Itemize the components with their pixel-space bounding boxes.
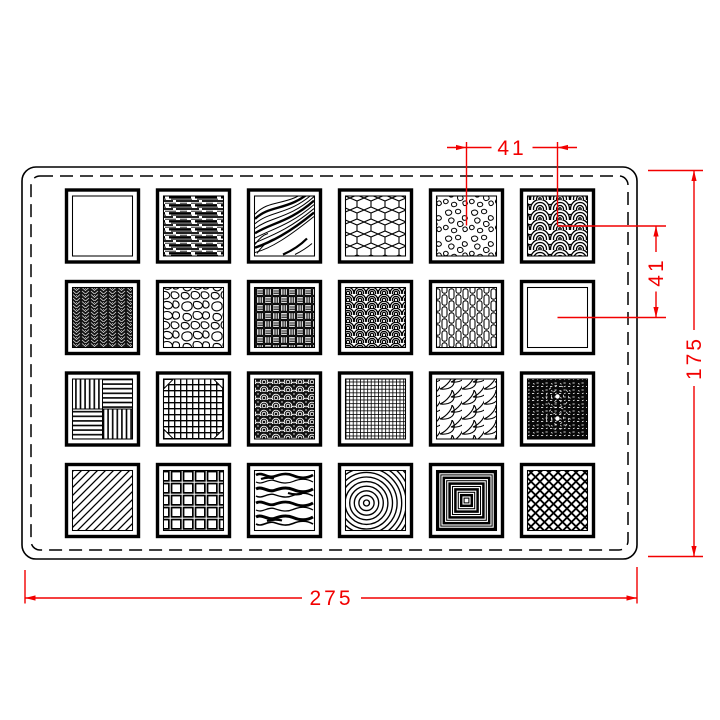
tile-r1c3-wood-grain-curved [249, 185, 321, 262]
tile-r4c6-diamond-net [522, 465, 594, 537]
dimension-label-horizontal-pitch: 41 [497, 137, 526, 160]
arrowhead [691, 546, 696, 557]
tile-r4c2-plaid [158, 465, 230, 537]
arrowhead [25, 595, 36, 600]
tile-r2c1-dark-knit [67, 282, 139, 354]
tile-r2c4-pine-scales [340, 282, 412, 354]
arrowhead [558, 145, 569, 150]
tile-r2c2-cobblestone [158, 282, 230, 354]
tile-r2c3-basket-weave [249, 282, 321, 354]
tile-r4c3-water-waves [249, 465, 321, 537]
arrowhead [653, 307, 658, 318]
texture-plate-drawing: 41 41 175 275 [0, 0, 720, 720]
dimension-plate-width: 275 [25, 567, 637, 610]
tile-r3c2-wire-mesh [158, 373, 230, 445]
tile-r4c1-diagonal-hatch [67, 465, 139, 537]
tile-r1c1-blank [67, 190, 139, 262]
tile-r3c4-fine-grid [340, 373, 412, 445]
arrowhead [456, 145, 467, 150]
arrowhead [627, 595, 638, 600]
dimension-label-plate-height: 175 [683, 336, 706, 380]
tile-r3c1-parquet [67, 373, 139, 445]
technical-drawing-sheet: 41 41 175 275 [0, 0, 720, 720]
tile-r2c5-woven-strips [431, 282, 503, 354]
tile-r3c3-rosette-band [249, 373, 321, 445]
arrowhead [653, 226, 658, 237]
dimension-label-plate-width: 275 [309, 587, 353, 610]
tile-r3c5-leaf-scales [431, 373, 503, 445]
tile-r3c6-starburst [522, 373, 594, 445]
tile-r4c5-concentric-squares [431, 465, 503, 537]
arrowhead [691, 171, 696, 182]
tile-r1c2-wood-grain-straight [158, 190, 230, 262]
dimension-label-vertical-pitch: 41 [645, 257, 668, 286]
tile-r1c4-cubes [340, 190, 412, 262]
